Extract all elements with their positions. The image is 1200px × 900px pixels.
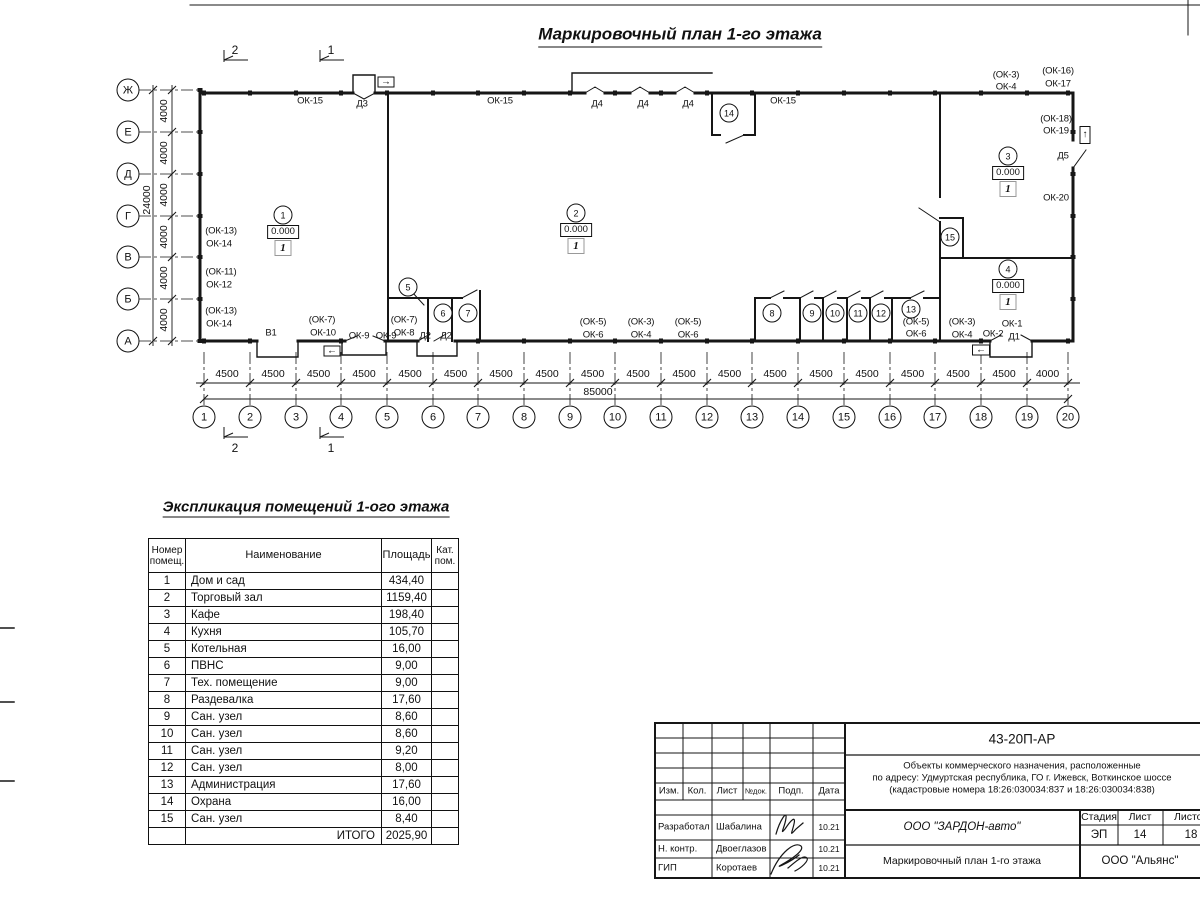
axis-bubble-Ж: Ж (117, 79, 140, 102)
explication-header: Площадь (382, 539, 432, 573)
explication-cell: 8,60 (382, 726, 432, 743)
explication-row: 13Администрация17,60 (149, 777, 459, 794)
dim-label: 4000 (158, 225, 170, 248)
revision-header: Лист (717, 786, 738, 797)
wall-label: ОК-10 (310, 328, 336, 339)
room-number-bubble: 4 (999, 260, 1018, 279)
dim-label: 4500 (398, 368, 421, 380)
revision-header: №док. (745, 787, 767, 796)
explication-cell: Кафе (186, 607, 382, 624)
room-number-bubble: 5 (399, 278, 418, 297)
explication-row: 2Торговый зал1159,40 (149, 590, 459, 607)
explication-cell: 8 (149, 692, 186, 709)
explication-cell (432, 658, 459, 675)
floor-number-box: 1 (568, 238, 585, 254)
titleblock-company: ООО "ЗАРДОН-авто" (904, 821, 1021, 833)
explication-cell: 6 (149, 658, 186, 675)
axis-bubble-5: 5 (376, 406, 399, 429)
wall-label: ОК-8 (394, 328, 415, 339)
dim-label: 4500 (352, 368, 375, 380)
explication-cell: 8,40 (382, 811, 432, 828)
explication-table: Номер помещ.НаименованиеПлощадьКат. пом.… (148, 538, 459, 845)
wall-label: Д4 (682, 99, 693, 110)
explication-cell: 9,00 (382, 675, 432, 692)
wall-label: ОК-15 (297, 96, 323, 107)
explication-row: 11Сан. узел9,20 (149, 743, 459, 760)
signature-role: Н. контр. (658, 844, 697, 855)
wall-label: Д2 (419, 331, 430, 342)
wall-label: (ОК-7) (309, 315, 336, 326)
dim-label: 4500 (215, 368, 238, 380)
explication-cell: 8,00 (382, 760, 432, 777)
explication-cell (432, 624, 459, 641)
explication-cell: 14 (149, 794, 186, 811)
axis-bubble-Е: Е (117, 121, 140, 144)
revision-header: Кол. (688, 786, 707, 797)
wall-label: Д1 (1008, 332, 1019, 343)
stage-label: Стадия (1081, 811, 1117, 823)
explication-header: Кат. пом. (432, 539, 459, 573)
axis-bubble-Б: Б (117, 288, 140, 311)
explication-cell: Охрана (186, 794, 382, 811)
wall-label: Д4 (637, 99, 648, 110)
room-number-bubble: 13 (902, 300, 921, 319)
revision-header: Изм. (659, 786, 679, 797)
explication-cell: 17,60 (382, 777, 432, 794)
floor-number-box: 1 (1000, 294, 1017, 310)
explication-cell (432, 794, 459, 811)
explication-cell: Дом и сад (186, 573, 382, 590)
wall-label: (ОК-13) (205, 306, 237, 317)
explication-cell (432, 743, 459, 760)
sheets-value: 18 (1185, 829, 1198, 841)
room-number-bubble: 2 (567, 204, 586, 223)
section-cut-label: 2 (232, 43, 239, 57)
explication-cell (432, 675, 459, 692)
wall-label: ОК-19 (1043, 126, 1069, 137)
wall-label: (ОК-5) (580, 317, 607, 328)
dim-label: 4500 (809, 368, 832, 380)
wall-label: (ОК-3) (628, 317, 655, 328)
explication-cell: Сан. узел (186, 743, 382, 760)
titleblock-drawing-title: Маркировочный план 1-го этажа (883, 855, 1041, 867)
axis-bubble-17: 17 (924, 406, 947, 429)
wall-label: Д4 (591, 99, 602, 110)
wall-label: (ОК-7) (391, 315, 418, 326)
dim-label: 4000 (158, 99, 170, 122)
explication-row: 8Раздевалка17,60 (149, 692, 459, 709)
wall-label: (ОК-11) (206, 267, 237, 278)
room-number-bubble: 11 (849, 304, 868, 323)
wall-label: Д5 (1057, 151, 1068, 162)
wall-label: В1 (265, 328, 276, 339)
explication-cell: Сан. узел (186, 811, 382, 828)
axis-bubble-19: 19 (1016, 406, 1039, 429)
axis-bubble-1: 1 (193, 406, 216, 429)
wall-label: ОК-14 (206, 239, 232, 250)
wall-label: (ОК-3) (949, 317, 976, 328)
wall-label: (ОК-5) (903, 317, 930, 328)
signature-role: ГИП (658, 863, 677, 874)
room-number-bubble: 1 (274, 206, 293, 225)
wall-label: ОК-12 (206, 280, 232, 291)
explication-row: 6ПВНС9,00 (149, 658, 459, 675)
explication-row: 1Дом и сад434,40 (149, 573, 459, 590)
axis-bubble-20: 20 (1057, 406, 1080, 429)
explication-total-row: ИТОГО2025,90 (149, 828, 459, 845)
dim-label: 4000 (158, 266, 170, 289)
axis-bubble-2: 2 (239, 406, 262, 429)
revision-header: Подп. (778, 786, 803, 797)
dim-label: 4500 (581, 368, 604, 380)
dim-label: 4500 (307, 368, 330, 380)
elevation-box: 0.000 (992, 166, 1024, 180)
explication-cell: ПВНС (186, 658, 382, 675)
explication-cell: 11 (149, 743, 186, 760)
explication-row: 5Котельная16,00 (149, 641, 459, 658)
explication-cell: 198,40 (382, 607, 432, 624)
axis-bubble-9: 9 (559, 406, 582, 429)
axis-bubble-4: 4 (330, 406, 353, 429)
signature-name: Шабалина (716, 822, 762, 833)
axis-bubble-15: 15 (833, 406, 856, 429)
room-number-bubble: 7 (459, 304, 478, 323)
wall-label: ОК-14 (206, 319, 232, 330)
stage-value: ЭП (1091, 829, 1108, 841)
axis-bubble-13: 13 (741, 406, 764, 429)
explication-cell (432, 811, 459, 828)
dim-label: 4000 (158, 308, 170, 331)
axis-bubble-18: 18 (970, 406, 993, 429)
dim-label: 4500 (535, 368, 558, 380)
sheet-value: 14 (1134, 829, 1147, 841)
project-description-line: по адресу: Удмуртская республика, ГО г. … (872, 773, 1171, 784)
axis-bubble-А: А (117, 330, 140, 353)
sheets-label: Листов (1174, 811, 1200, 823)
drawing-sheet: ЖЕДГВБА400040004000400040004000240001234… (0, 0, 1200, 900)
explication-row: 12Сан. узел8,00 (149, 760, 459, 777)
explication-row: 7Тех. помещение9,00 (149, 675, 459, 692)
axis-bubble-8: 8 (513, 406, 536, 429)
explication-cell: Сан. узел (186, 726, 382, 743)
explication-cell: 17,60 (382, 692, 432, 709)
wall-label: ОК-6 (906, 329, 927, 340)
project-description-line: (кадастровые номера 18:26:030034:837 и 1… (889, 785, 1155, 796)
elevation-box: 0.000 (560, 223, 592, 237)
room-number-bubble: 10 (826, 304, 845, 323)
wall-label: (ОК-16) (1042, 66, 1074, 77)
wall-label: Д3 (356, 99, 367, 110)
explication-cell: 3 (149, 607, 186, 624)
wall-label: ОК-4 (631, 330, 652, 341)
explication-row: 9Сан. узел8,60 (149, 709, 459, 726)
axis-bubble-3: 3 (285, 406, 308, 429)
wall-label: ОК-17 (1045, 79, 1071, 90)
explication-row: 3Кафе198,40 (149, 607, 459, 624)
wall-label: (ОК-5) (675, 317, 702, 328)
explication-cell: 9,20 (382, 743, 432, 760)
room-number-bubble: 9 (803, 304, 822, 323)
explication-row: 15Сан. узел8,40 (149, 811, 459, 828)
exit-arrow-sign: → (378, 77, 395, 88)
explication-cell: 1 (149, 573, 186, 590)
axis-bubble-7: 7 (467, 406, 490, 429)
dim-label: 4000 (158, 183, 170, 206)
wall-label: ОК-2 (983, 329, 1004, 340)
explication-cell (432, 607, 459, 624)
explication-title: Экспликация помещений 1-ого этажа (163, 499, 450, 518)
overall-dim-label: 85000 (583, 386, 612, 398)
explication-cell (432, 828, 459, 845)
explication-cell: 12 (149, 760, 186, 777)
explication-cell (432, 709, 459, 726)
dim-label: 4500 (626, 368, 649, 380)
explication-cell: 1159,40 (382, 590, 432, 607)
axis-bubble-10: 10 (604, 406, 627, 429)
wall-label: ОК-15 (770, 96, 796, 107)
explication-cell: Тех. помещение (186, 675, 382, 692)
explication-cell: 5 (149, 641, 186, 658)
axis-bubble-14: 14 (787, 406, 810, 429)
explication-row: 4Кухня105,70 (149, 624, 459, 641)
signature-date: 10.21 (818, 844, 839, 854)
explication-cell: 8,60 (382, 709, 432, 726)
explication-cell: 16,00 (382, 641, 432, 658)
signature-date: 10.21 (818, 863, 839, 873)
explication-cell (432, 692, 459, 709)
explication-cell: ИТОГО (186, 828, 382, 845)
axis-bubble-Д: Д (117, 163, 140, 186)
section-cut-label: 1 (328, 441, 335, 455)
dim-label: 4500 (946, 368, 969, 380)
signature-name: Двоеглазов (716, 844, 767, 855)
explication-cell (432, 573, 459, 590)
axis-bubble-6: 6 (422, 406, 445, 429)
room-number-bubble: 14 (720, 104, 739, 123)
wall-label: ОК-20 (1043, 193, 1069, 204)
dim-label: 4000 (158, 141, 170, 164)
axis-bubble-В: В (117, 246, 140, 269)
overall-dim-label: 24000 (141, 185, 153, 214)
wall-label: (ОК-13) (205, 226, 237, 237)
floor-number-box: 1 (275, 240, 292, 256)
axis-bubble-12: 12 (696, 406, 719, 429)
wall-label: Д2 (440, 331, 451, 342)
axis-bubble-16: 16 (879, 406, 902, 429)
explication-cell: 16,00 (382, 794, 432, 811)
explication-cell (432, 590, 459, 607)
explication-cell (432, 641, 459, 658)
signature-role: Разработал (658, 822, 710, 833)
explication-cell: 10 (149, 726, 186, 743)
dim-label: 4500 (672, 368, 695, 380)
explication-cell: 15 (149, 811, 186, 828)
explication-row: 14Охрана16,00 (149, 794, 459, 811)
room-number-bubble: 15 (941, 228, 960, 247)
explication-cell: Котельная (186, 641, 382, 658)
wall-label: ОК-4 (952, 330, 973, 341)
explication-cell: 434,40 (382, 573, 432, 590)
explication-cell: 9 (149, 709, 186, 726)
explication-cell: Сан. узел (186, 709, 382, 726)
dim-label: 4500 (855, 368, 878, 380)
page-title: Маркировочный план 1-го этажа (538, 25, 822, 48)
room-number-bubble: 12 (872, 304, 891, 323)
dim-label: 4000 (1036, 368, 1059, 380)
project-description-line: Объекты коммерческого назначения, распол… (903, 761, 1140, 772)
explication-cell: 13 (149, 777, 186, 794)
explication-cell: 4 (149, 624, 186, 641)
room-number-bubble: 8 (763, 304, 782, 323)
explication-header: Номер помещ. (149, 539, 186, 573)
dim-label: 4500 (261, 368, 284, 380)
exit-arrow-sign: ← (324, 346, 341, 357)
wall-label: (ОК-3) (993, 70, 1020, 81)
explication-cell: Сан. узел (186, 760, 382, 777)
room-number-bubble: 3 (999, 147, 1018, 166)
explication-cell: Раздевалка (186, 692, 382, 709)
explication-cell: 2025,90 (382, 828, 432, 845)
room-number-bubble: 6 (434, 304, 453, 323)
wall-label: ОК-1 (1002, 319, 1023, 330)
wall-label: ОК-4 (996, 82, 1017, 93)
explication-cell (432, 726, 459, 743)
explication-row: 10Сан. узел8,60 (149, 726, 459, 743)
explication-cell (149, 828, 186, 845)
wall-label: ОК-9 (349, 331, 370, 342)
signature-name: Коротаев (716, 863, 757, 874)
explication-cell (432, 760, 459, 777)
axis-bubble-11: 11 (650, 406, 673, 429)
sheet-label: Лист (1129, 811, 1152, 823)
wall-label: ОК-6 (583, 330, 604, 341)
dim-label: 4500 (489, 368, 512, 380)
floor-number-box: 1 (1000, 181, 1017, 197)
signature-date: 10.21 (818, 822, 839, 832)
explication-cell: 7 (149, 675, 186, 692)
explication-cell: 9,00 (382, 658, 432, 675)
explication-cell: Администрация (186, 777, 382, 794)
elevation-box: 0.000 (992, 279, 1024, 293)
wall-label: ОК-15 (487, 96, 513, 107)
doc-code: 43-20П-АР (989, 732, 1056, 747)
elevation-box: 0.000 (267, 225, 299, 239)
explication-cell: Кухня (186, 624, 382, 641)
explication-cell: Торговый зал (186, 590, 382, 607)
axis-bubble-Г: Г (117, 205, 140, 228)
dim-label: 4500 (763, 368, 786, 380)
explication-cell: 105,70 (382, 624, 432, 641)
titleblock-contractor: ООО "Альянс" (1102, 855, 1179, 867)
dim-label: 4500 (444, 368, 467, 380)
dim-label: 4500 (718, 368, 741, 380)
explication-cell (432, 777, 459, 794)
exit-arrow-sign: ← (972, 345, 990, 356)
section-cut-label: 1 (328, 43, 335, 57)
wall-label: ОК-6 (678, 330, 699, 341)
exit-arrow-sign: ↑ (1080, 126, 1091, 144)
section-cut-label: 2 (232, 441, 239, 455)
explication-header: Наименование (186, 539, 382, 573)
revision-header: Дата (818, 786, 839, 797)
explication-cell: 2 (149, 590, 186, 607)
wall-label: (ОК-18) (1040, 114, 1072, 125)
dim-label: 4500 (901, 368, 924, 380)
dim-label: 4500 (992, 368, 1015, 380)
